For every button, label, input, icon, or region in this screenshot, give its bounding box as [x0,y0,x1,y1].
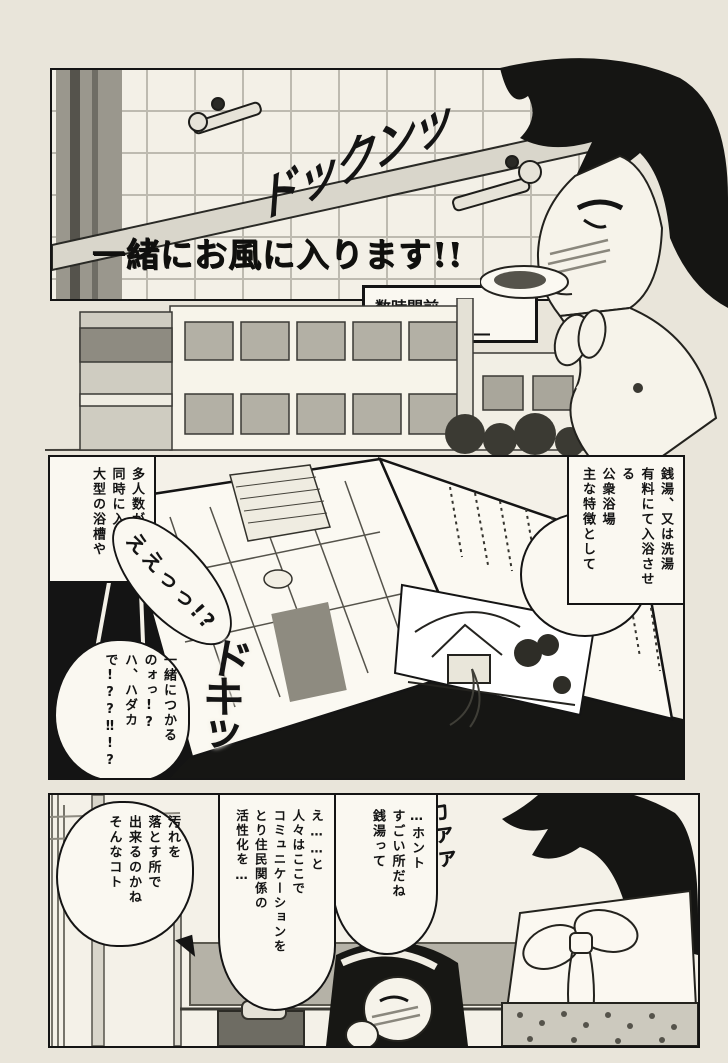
bubble-line: 出来るのかね [124,815,144,933]
bubble-line: 落とす所で [143,815,163,933]
bubble-sento-amazing: …ホント すごい所だね 銭湯って [332,793,438,955]
bubble-communication: え……と 人々はここで コミュニケーションを とり住民関係の 活性化を… [218,793,336,1011]
caption-line: 大型の浴槽や [88,467,108,571]
manga-page: ドックンッ 一緒にお風に入ります!! 数時間前 ―図書館― [0,0,728,1063]
bubble-line: コミュニケーションを [269,809,288,995]
caption-line: 主な特徴として [578,467,598,593]
bubble-line: え……と [306,809,325,995]
bubble-line: 活性化を… [231,809,250,995]
bubble-line: 銭湯って [368,809,388,939]
caption-line: 有料にて入浴させる [617,467,656,593]
bubble-line: すごい所だね [387,809,407,939]
bubble-skeptical: 汚れを 落とす所で 出来るのかね そんなコト [56,801,194,947]
caption-line: 公衆浴場 [597,467,617,593]
bubble-line: ハ、ハダカ [120,653,140,768]
bubble-line: 汚れを [163,815,183,933]
blushing-girl-art [480,58,728,458]
bubble-line: …ホント [407,809,427,939]
bubble-naked-question: 一緒につかる のォっ!? ハ、ハダカ で!??‼!? [54,639,190,780]
panel-title: 一緒にお風に入ります!! [92,228,463,276]
bubble-line: で!??‼!? [100,653,120,768]
shower-fixture-icon [189,98,262,135]
bubble-line: のォっ!? [139,653,159,768]
bubble-line: そんなコト [104,815,124,933]
bubble-line: 人々はここで [288,809,307,995]
bubble-line: とり住民関係の [250,809,269,995]
bubble-line: 一緒につかる [159,653,179,768]
caption-sento-definition: 銭湯、又は洗湯 有料にて入浴させる 公衆浴場 主な特徴として [567,455,685,605]
panel-classroom: カァァ …ホント すごい所だね 銭湯って え……と 人々はここで コミュニケーシ… [48,793,700,1048]
caption-line: 銭湯、又は洗湯 [656,467,676,593]
panel-open-book: 多人数が 同時に入れる 大型の浴槽や 銭湯、又は洗湯 有料にて入浴させる 公衆浴… [48,455,685,780]
